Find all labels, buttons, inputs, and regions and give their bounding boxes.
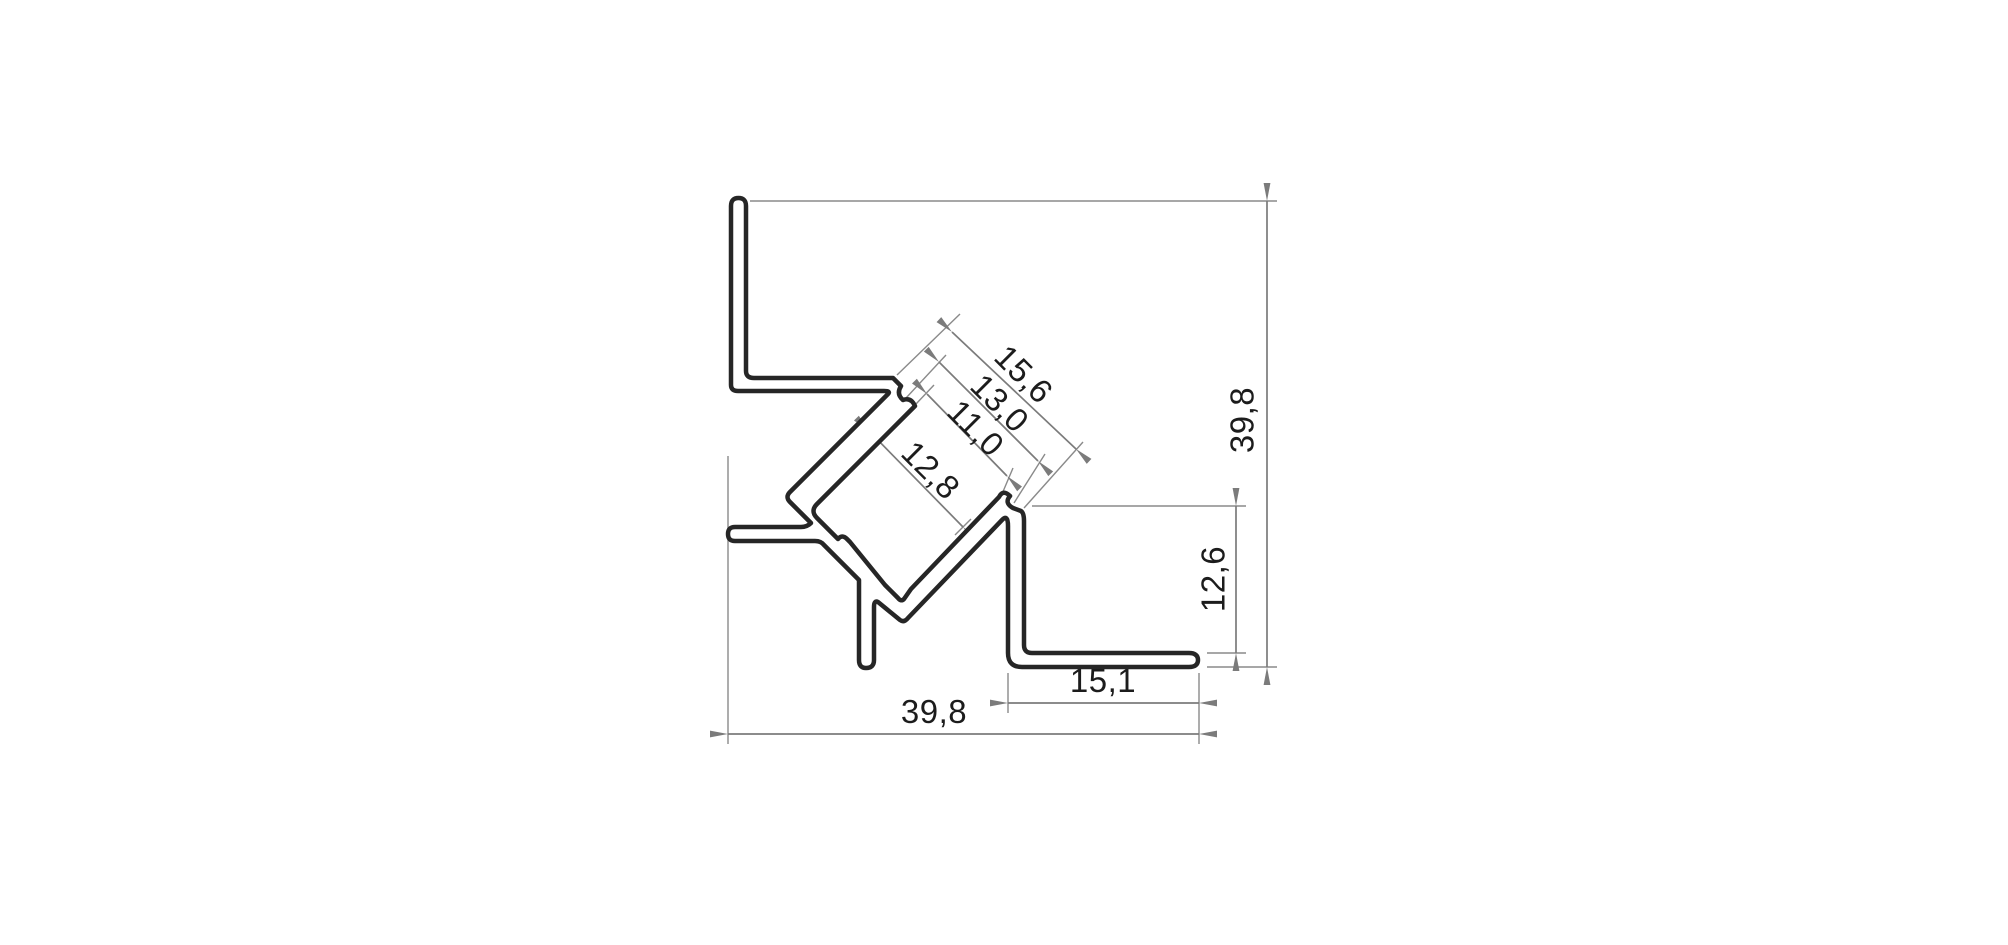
- dim-label-channel-inner: 12,8: [894, 434, 967, 507]
- extension-line-slot-c: [916, 385, 934, 404]
- dim-label-overall-height: 39,8: [1224, 387, 1261, 453]
- dim-label-leg-height: 12,6: [1195, 546, 1232, 612]
- drawing-canvas: 15,6 13,0 11,0 12,8 39,8 12,6 15,1 39,8: [0, 0, 2008, 945]
- profile-drawing: 15,6 13,0 11,0 12,8 39,8 12,6 15,1 39,8: [0, 0, 2008, 945]
- extension-line-slot-a: [897, 314, 960, 375]
- dim-label-foot-width: 15,1: [1070, 662, 1136, 699]
- extension-line-slot-e: [1014, 454, 1045, 503]
- dim-label-overall-width: 39,8: [901, 693, 967, 730]
- dimension-labels: 15,6 13,0 11,0 12,8 39,8 12,6 15,1 39,8: [894, 338, 1260, 730]
- extension-line-slot-d: [1024, 442, 1083, 508]
